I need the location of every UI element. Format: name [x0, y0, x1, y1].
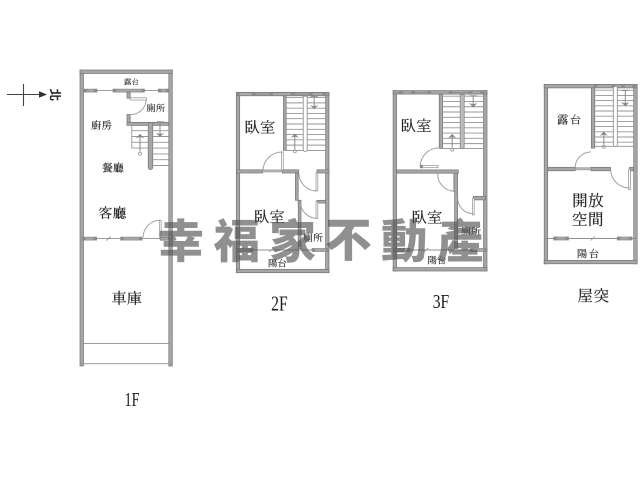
svg-text:3F: 3F — [433, 291, 450, 313]
svg-text:2F: 2F — [271, 292, 288, 316]
svg-text:1F: 1F — [125, 389, 140, 411]
